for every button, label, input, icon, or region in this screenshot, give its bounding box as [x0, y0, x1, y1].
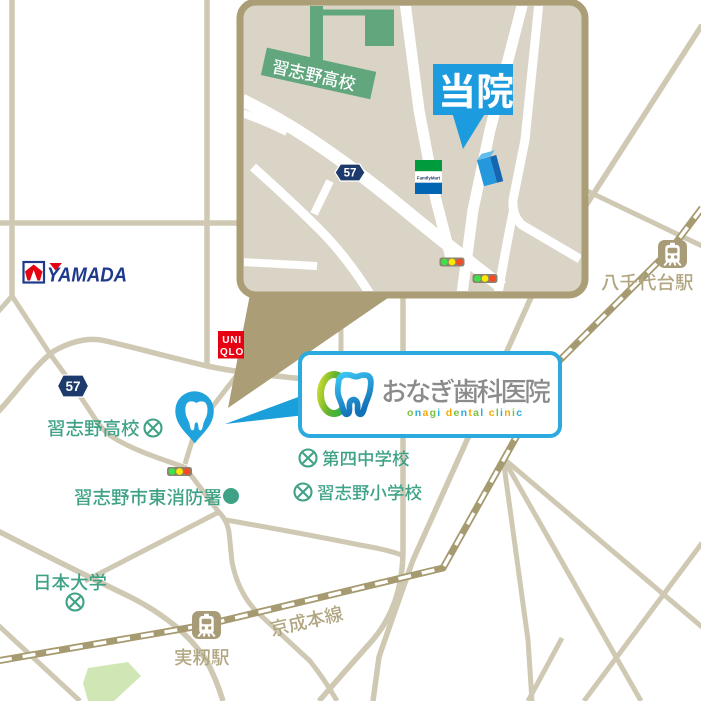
svg-text:57: 57 [344, 168, 357, 180]
svg-text:UNI: UNI [222, 335, 242, 346]
svg-text:57: 57 [65, 379, 80, 394]
svg-text:FamilyMart: FamilyMart [417, 175, 441, 180]
svg-text:QLO: QLO [220, 347, 244, 358]
svg-text:onagi dental clinic: onagi dental clinic [407, 407, 523, 419]
svg-text:YAMADA: YAMADA [47, 264, 127, 287]
